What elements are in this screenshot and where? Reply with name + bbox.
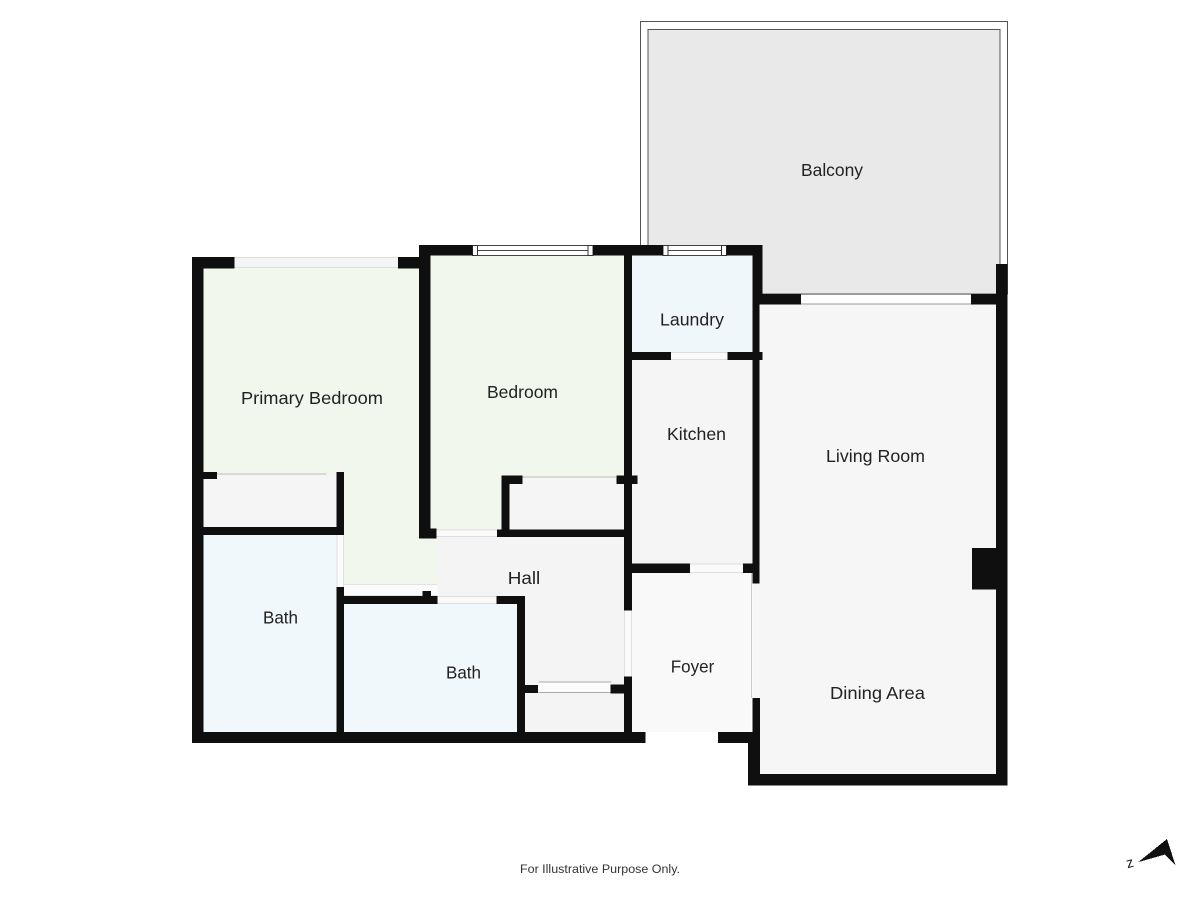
svg-text:Primary Bedroom: Primary Bedroom	[241, 388, 383, 408]
svg-text:Bath: Bath	[446, 663, 481, 683]
svg-text:For Illustrative Purpose Only.: For Illustrative Purpose Only.	[520, 862, 680, 876]
svg-text:Bath: Bath	[263, 608, 298, 628]
svg-text:Hall: Hall	[508, 568, 541, 588]
svg-text:Dining Area: Dining Area	[830, 683, 925, 703]
svg-text:Laundry: Laundry	[660, 310, 724, 330]
svg-text:Kitchen: Kitchen	[667, 424, 726, 444]
svg-text:Living Room: Living Room	[826, 446, 925, 466]
svg-text:Balcony: Balcony	[801, 160, 863, 180]
svg-text:Bedroom: Bedroom	[487, 382, 558, 402]
svg-text:Foyer: Foyer	[671, 657, 715, 677]
